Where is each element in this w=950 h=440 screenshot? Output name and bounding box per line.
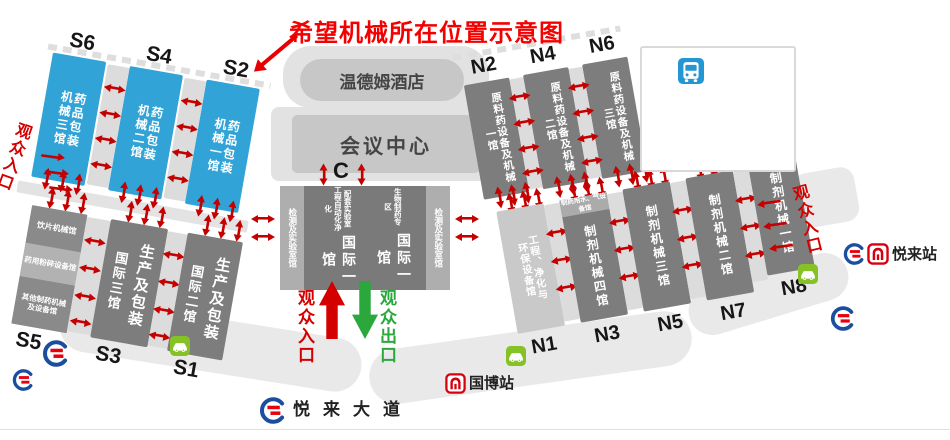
double-arrow-icon — [233, 220, 245, 241]
parking-car-icon — [798, 264, 818, 284]
yuelai-station-label: 悦来站 — [892, 247, 937, 262]
hall-n5-label: N5 — [645, 309, 696, 337]
hall-c-lab-left: 检测及实验室馆 — [280, 186, 304, 290]
double-arrow-icon — [156, 207, 168, 228]
hall-n3-body: 制剂机械四馆 — [579, 212, 611, 320]
hall-c: 检测及实验室馆 配套实验室 工程自动化净化 国际一馆 生物制药专区 国际一馆 检… — [280, 186, 450, 290]
hall-n1-name: 工程、净化与 环保设备馆 — [514, 234, 547, 303]
page-title: 希望机械所在位置示意图 — [289, 13, 564, 48]
hall-s6-name: 药品包装 机械三馆 — [51, 89, 87, 149]
parking-car-icon — [170, 336, 190, 356]
hall-s6-label: S6 — [54, 27, 111, 57]
hall-c-center: 配套实验室 工程自动化净化 国际一馆 生物制药专区 国际一馆 — [304, 186, 426, 290]
hall-s2-name: 药品包装 机械一馆 — [204, 116, 240, 176]
map-bottom-line — [0, 429, 950, 430]
hall-n2-name: 原料药设备及机械 一馆 — [477, 91, 516, 186]
double-arrow-icon — [77, 193, 89, 214]
double-arrow-icon — [124, 201, 136, 222]
south-exit-label: 观众出口 — [378, 289, 395, 365]
hall-n3-label: N3 — [582, 320, 633, 348]
hall-n4-name: 原料药设备及机械 二馆 — [536, 81, 575, 176]
guobo-station-label: 国博站 — [469, 376, 514, 391]
metro-logo-icon — [259, 397, 286, 424]
metro-logo-icon — [12, 369, 34, 391]
double-arrow-icon — [201, 215, 213, 236]
hall-c-block-b-sub: 生物制药专区 — [383, 186, 403, 227]
hall-c-lab-left-name: 检测及实验室馆 — [287, 208, 297, 268]
hall-n7-name: 制剂机械二馆 — [706, 193, 734, 278]
hall-n6-name: 原料药设备及机械 三馆 — [595, 70, 634, 165]
hall-c-label: C — [326, 160, 356, 182]
metro-station-icon — [445, 373, 466, 394]
double-arrow-icon — [320, 165, 329, 185]
northeast-building — [640, 46, 796, 172]
hall-n3-name: 制剂机械四馆 — [581, 223, 609, 308]
hall-c-block-a-sub: 配套实验室 工程自动化净化 — [323, 186, 352, 231]
hall-s1-name: 生产及包装 国际二馆 — [176, 251, 234, 342]
double-arrow-icon — [358, 165, 367, 185]
expo-site-map: S6 S4 S2 药品包装 机械三馆 药品包装 机械二馆 药品包装 机械一馆 — [0, 0, 950, 440]
yuelai-avenue-label: 悦来大道 — [293, 401, 413, 418]
metro-logo-icon — [42, 340, 69, 367]
metro-station-icon — [867, 243, 889, 265]
hall-n5-name: 制剂机械三馆 — [643, 204, 671, 289]
south-entrance-label: 观众入口 — [296, 289, 313, 365]
double-arrow-icon — [252, 214, 274, 223]
double-arrow-icon — [217, 218, 229, 239]
hall-c-block-a-main: 国际一馆 — [319, 231, 359, 290]
metro-logo-icon — [843, 243, 865, 265]
hall-s3-name: 生产及包装 国际三馆 — [100, 238, 158, 329]
hall-s5-section-3: 其他制药机械 及设备馆 — [11, 276, 74, 333]
hall-c-lab-right-name: 检测及实验室馆 — [433, 208, 443, 268]
hall-n1-label: N1 — [519, 331, 570, 359]
double-arrow-icon — [140, 204, 152, 225]
parking-car-icon — [506, 346, 526, 366]
hall-c-block-b: 生物制药专区 国际一馆 — [371, 186, 414, 290]
hall-c-lab-right: 检测及实验室馆 — [426, 186, 450, 290]
double-arrow-icon — [252, 232, 274, 241]
hall-s4-label: S4 — [131, 40, 188, 70]
hall-n7-label: N7 — [708, 298, 759, 326]
bus-stop-icon — [678, 58, 704, 84]
hall-s3-label: S3 — [78, 340, 139, 371]
hall-c-block-a: 配套实验室 工程自动化净化 国际一馆 — [316, 186, 359, 290]
hall-s1-label: S1 — [157, 354, 216, 384]
hall-s4-name: 药品包装 机械二馆 — [127, 103, 163, 163]
hall-c-block-b-main: 国际一馆 — [374, 227, 414, 290]
metro-logo-icon — [830, 306, 855, 331]
conference-name: 会议中心 — [340, 130, 432, 159]
hotel-name: 温德姆酒店 — [340, 68, 425, 93]
